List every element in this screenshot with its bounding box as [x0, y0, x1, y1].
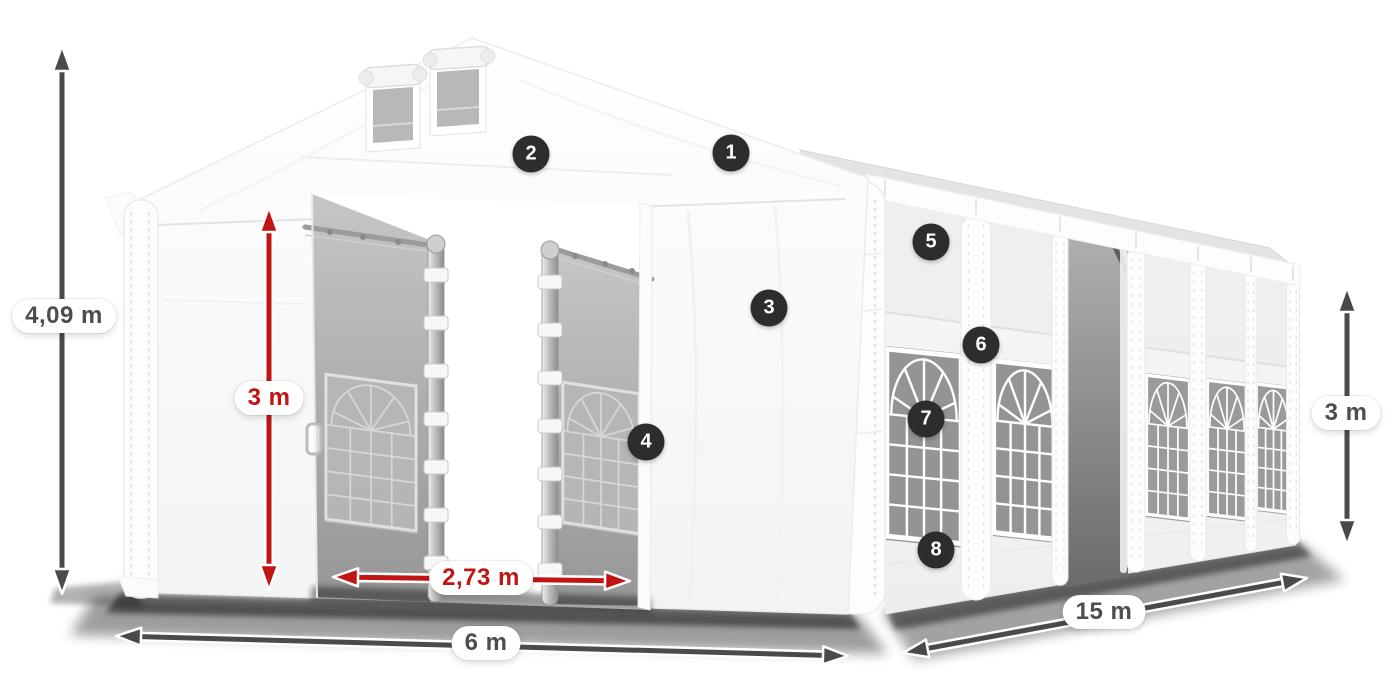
- callout-7[interactable]: 7: [908, 401, 945, 438]
- dimension-label-entrance-width: 2,73 m: [429, 561, 533, 595]
- dimension-label-total-height: 4,09 m: [12, 299, 116, 333]
- dimension-label-side-height: 3 m: [1312, 396, 1381, 430]
- tent-illustration: [106, 38, 1300, 614]
- callout-2[interactable]: 2: [513, 136, 550, 173]
- dimension-label-length: 15 m: [1063, 595, 1146, 629]
- dimension-label-entrance-height: 3 m: [235, 381, 304, 415]
- callout-1[interactable]: 1: [713, 135, 750, 172]
- tent-scene: [0, 0, 1400, 700]
- callout-4[interactable]: 4: [628, 424, 665, 461]
- dimension-label-width: 6 m: [452, 626, 521, 660]
- callout-5[interactable]: 5: [913, 224, 950, 261]
- callout-3[interactable]: 3: [751, 290, 788, 327]
- tent-diagram: 4,09 m 3 m 2,73 m 6 m 15 m 3 m 1 2 3 4 5…: [0, 0, 1400, 700]
- callout-8[interactable]: 8: [918, 532, 955, 569]
- callout-6[interactable]: 6: [963, 327, 1000, 364]
